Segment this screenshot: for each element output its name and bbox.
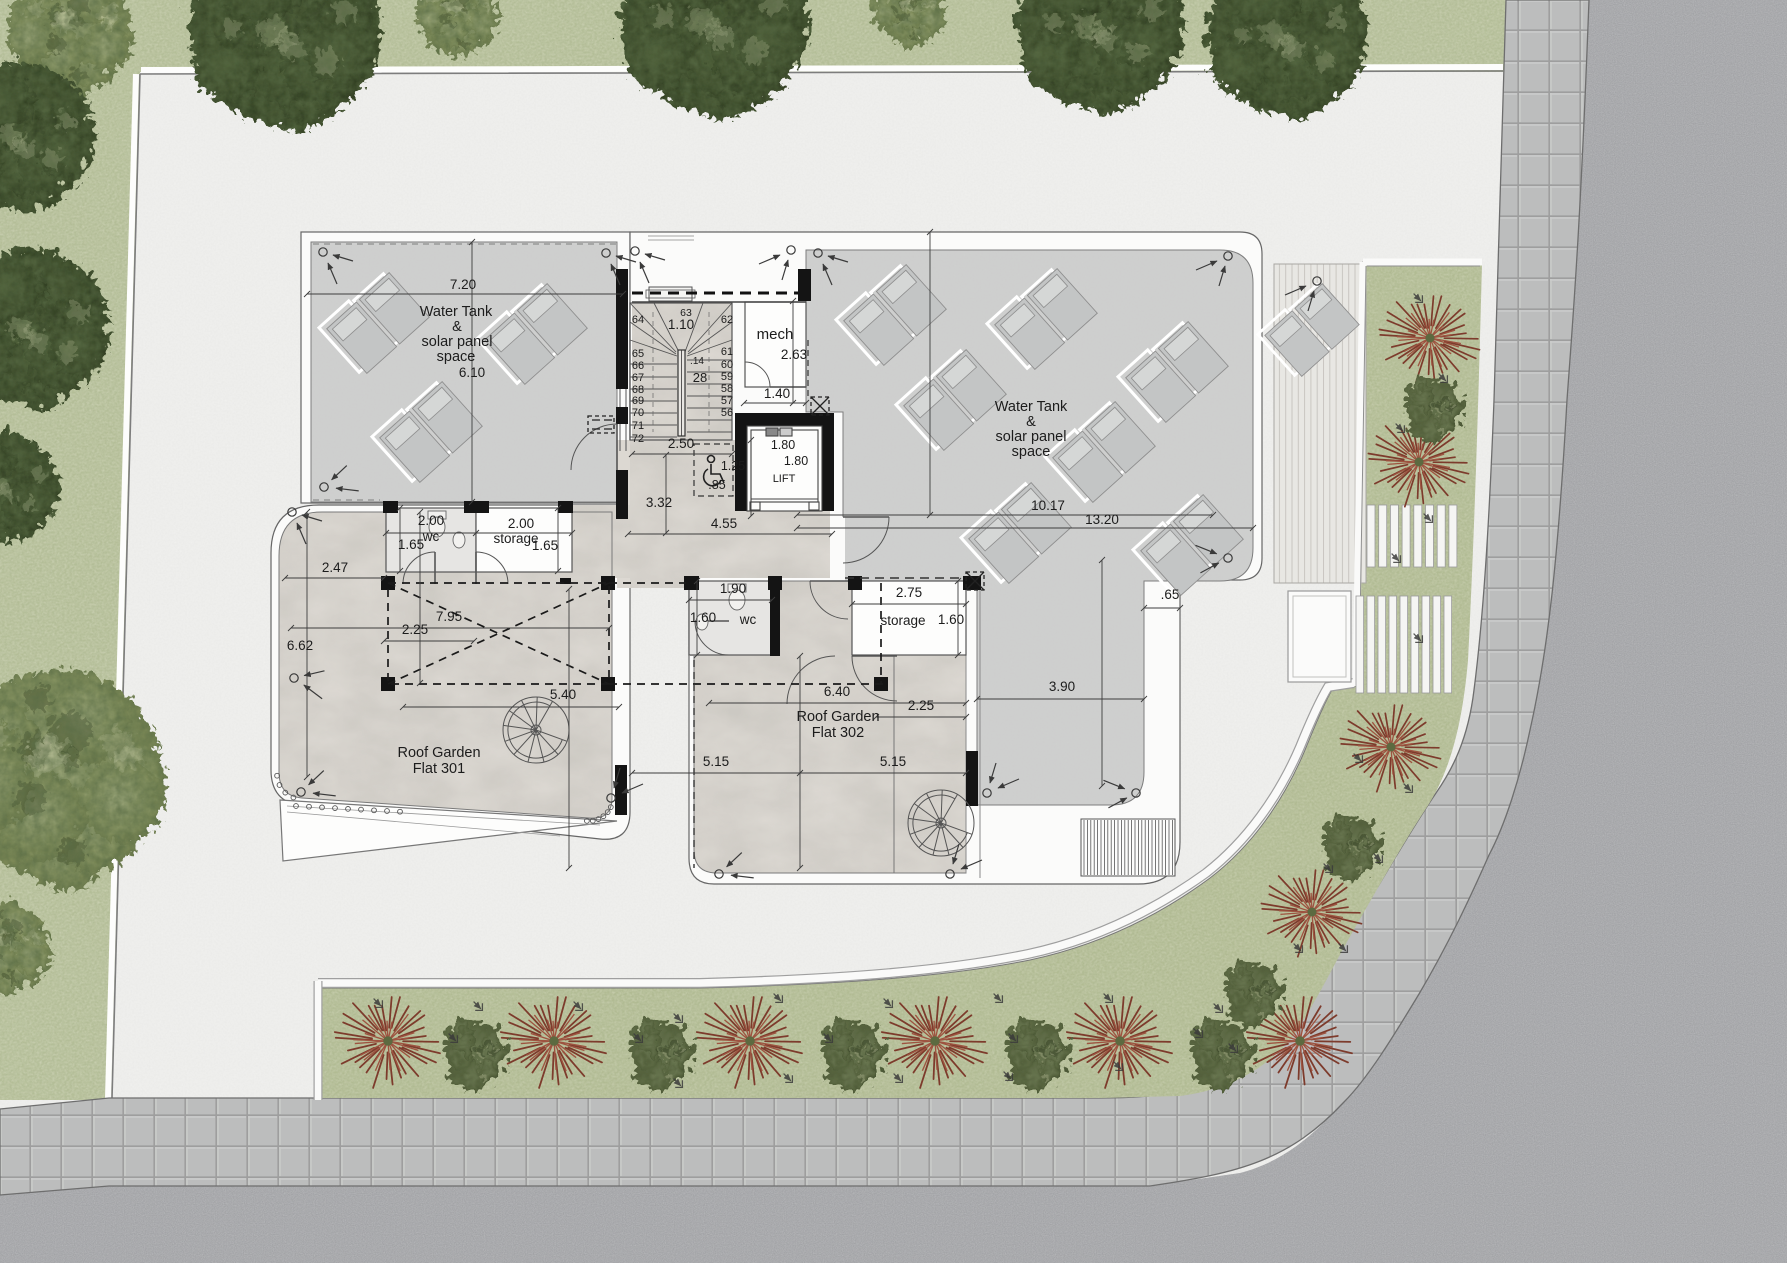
svg-text:Flat 301: Flat 301 [413,761,465,777]
svg-text:2.75: 2.75 [896,585,922,600]
svg-text:10.17: 10.17 [1031,498,1065,513]
svg-text:65: 65 [632,348,644,360]
svg-text:wc: wc [739,612,757,627]
svg-text:Water Tank: Water Tank [995,399,1068,415]
svg-text:57: 57 [721,395,733,407]
svg-text:2.00: 2.00 [508,516,534,531]
svg-text:6.62: 6.62 [287,638,313,653]
svg-text:3.32: 3.32 [646,495,672,510]
svg-text:Roof Garden: Roof Garden [397,745,480,761]
svg-text:67: 67 [632,372,644,384]
svg-text:5.15: 5.15 [703,754,729,769]
svg-text:1.60: 1.60 [690,610,716,625]
svg-text:72: 72 [632,433,644,445]
svg-text:solar panel: solar panel [996,429,1067,445]
svg-text:6.10: 6.10 [459,365,485,380]
svg-text:64: 64 [632,314,644,326]
svg-text:56: 56 [721,407,733,419]
svg-text:.14: .14 [690,356,704,367]
svg-text:1.90: 1.90 [720,581,746,596]
svg-text:Water Tank: Water Tank [420,304,493,320]
svg-text:1.10: 1.10 [668,317,694,332]
svg-text:2.50: 2.50 [668,436,694,451]
svg-text:69: 69 [632,395,644,407]
svg-text:5.40: 5.40 [550,687,576,702]
svg-text:2.25: 2.25 [908,698,934,713]
svg-text:3.90: 3.90 [1049,679,1075,694]
svg-text:1.65: 1.65 [398,537,424,552]
svg-text:7.20: 7.20 [450,277,476,292]
svg-text:Flat 302: Flat 302 [812,725,864,741]
svg-text:66: 66 [632,360,644,372]
svg-text:1.40: 1.40 [764,386,790,401]
svg-text:space: space [437,349,476,365]
svg-text:61: 61 [721,346,733,358]
svg-text:70: 70 [632,407,644,419]
svg-text:71: 71 [632,420,644,432]
svg-text:1.80: 1.80 [771,438,795,452]
svg-text:space: space [1012,444,1051,460]
svg-text:wc: wc [422,529,440,544]
svg-text:7.95: 7.95 [436,609,462,624]
svg-text:62: 62 [721,314,733,326]
svg-text:2.25: 2.25 [402,622,428,637]
svg-text:1.60: 1.60 [938,612,964,627]
svg-text:1.80: 1.80 [784,454,808,468]
svg-text:60: 60 [721,359,733,371]
svg-text:Roof Garden: Roof Garden [796,709,879,725]
svg-text:.65: .65 [1161,587,1180,602]
svg-text:59: 59 [721,371,733,383]
svg-text:solar panel: solar panel [422,334,493,350]
svg-text:58: 58 [721,383,733,395]
svg-text:mech: mech [757,326,794,343]
svg-text:5.15: 5.15 [880,754,906,769]
svg-text:2.00: 2.00 [418,513,444,528]
svg-text:&: & [1026,414,1036,430]
svg-text:2.47: 2.47 [322,560,348,575]
svg-text:6.40: 6.40 [824,684,850,699]
svg-text:2.63: 2.63 [781,347,807,362]
svg-text:&: & [452,319,462,335]
svg-text:28: 28 [693,370,707,385]
svg-text:1.25: 1.25 [721,459,745,473]
svg-text:13.20: 13.20 [1085,512,1119,527]
svg-text:storage: storage [880,613,925,628]
svg-text:.85: .85 [708,478,725,492]
svg-text:LIFT: LIFT [773,473,796,485]
svg-text:1.65: 1.65 [532,538,558,553]
svg-text:4.55: 4.55 [711,516,737,531]
